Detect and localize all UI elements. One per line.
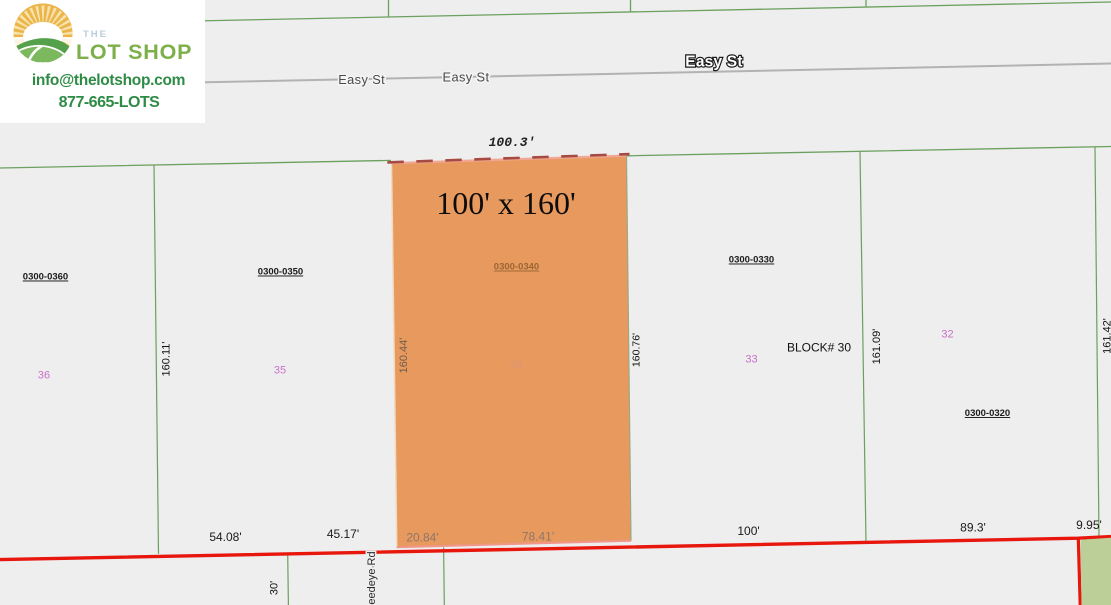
svg-text:89.3': 89.3' [960, 521, 986, 535]
svg-text:32: 32 [941, 329, 953, 341]
svg-text:160.76': 160.76' [631, 333, 643, 367]
svg-text:0300-0340: 0300-0340 [494, 262, 539, 273]
svg-text:160.44': 160.44' [398, 338, 410, 374]
svg-text:160.11': 160.11' [161, 342, 173, 377]
svg-text:100' x 160': 100' x 160' [436, 185, 576, 221]
svg-text:0300-0350: 0300-0350 [258, 267, 303, 278]
svg-text:Easy St: Easy St [338, 72, 385, 87]
svg-text:0300-0360: 0300-0360 [23, 272, 68, 283]
svg-text:20.84': 20.84' [406, 531, 438, 545]
svg-text:0300-0330: 0300-0330 [729, 255, 774, 266]
svg-text:9.95': 9.95' [1076, 518, 1102, 532]
svg-text:33: 33 [745, 354, 757, 366]
svg-text:0300-0320: 0300-0320 [965, 408, 1010, 419]
svg-text:30': 30' [269, 581, 281, 595]
svg-text:45.17': 45.17' [327, 527, 359, 541]
svg-text:35: 35 [274, 365, 286, 377]
svg-text:Easy St: Easy St [685, 54, 742, 71]
svg-text:100.3': 100.3' [489, 135, 536, 150]
svg-text:34: 34 [510, 360, 522, 372]
svg-text:Easy St: Easy St [443, 70, 490, 85]
svg-text:54.08': 54.08' [209, 530, 241, 544]
svg-text:Reedeye Rd: Reedeye Rd [366, 551, 378, 605]
svg-text:161.09': 161.09' [871, 329, 883, 365]
svg-text:100': 100' [737, 524, 759, 538]
svg-text:BLOCK# 30: BLOCK# 30 [787, 341, 851, 355]
svg-text:36: 36 [38, 370, 50, 382]
svg-text:78.41': 78.41' [522, 530, 554, 544]
svg-text:161.42': 161.42' [1102, 318, 1111, 354]
